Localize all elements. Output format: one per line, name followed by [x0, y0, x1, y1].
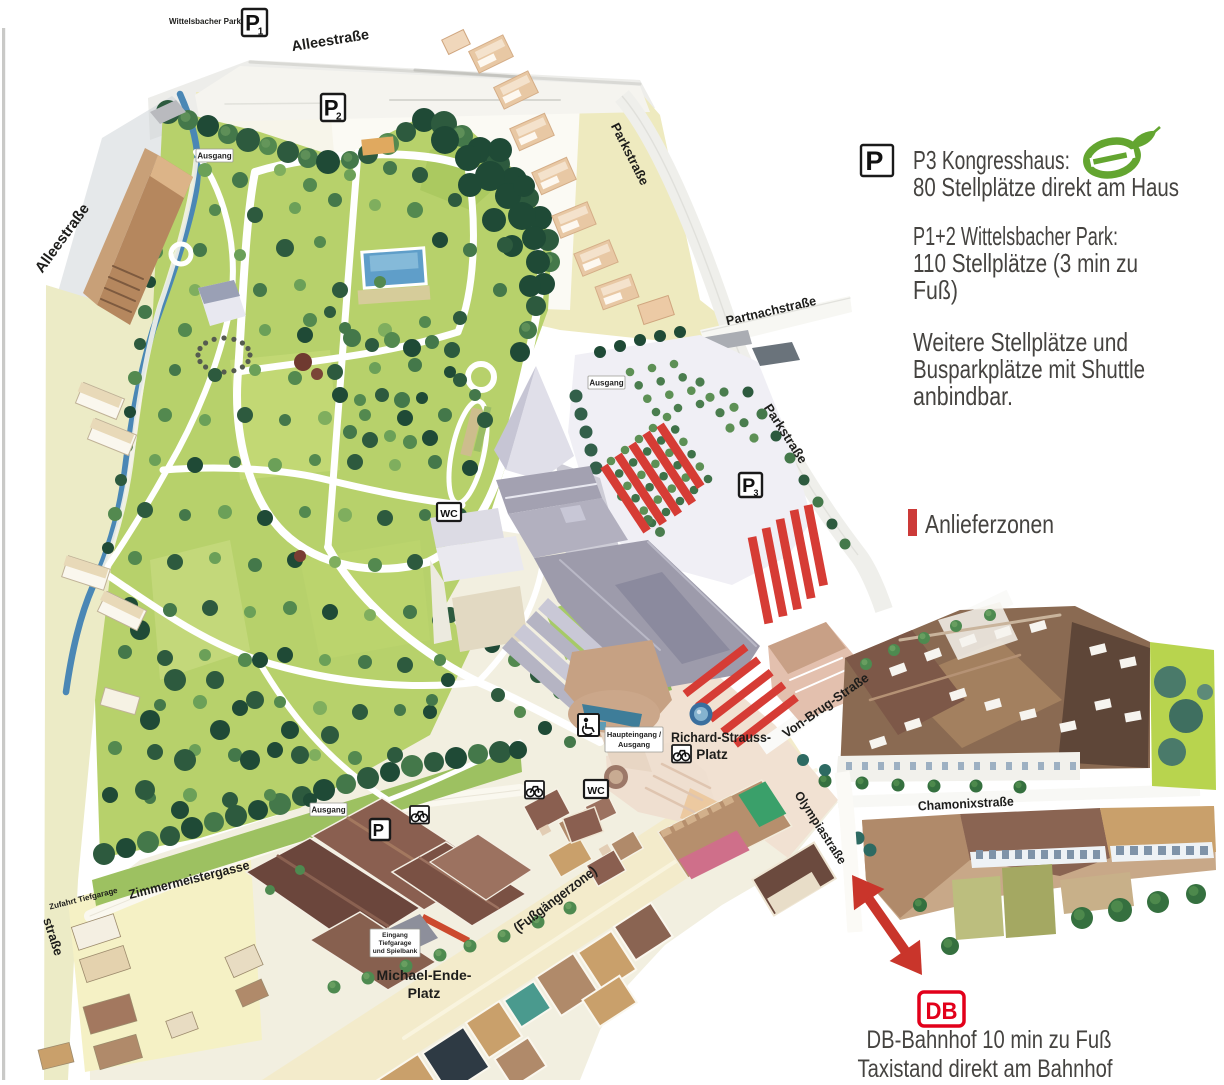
- svg-text:Ausgang: Ausgang: [589, 379, 623, 388]
- svg-text:P: P: [865, 146, 883, 176]
- svg-text:DB: DB: [926, 998, 958, 1025]
- svg-text:P1+2 Wittelsbacher Park:: P1+2 Wittelsbacher Park:: [913, 221, 1118, 251]
- svg-text:Ausgang: Ausgang: [311, 806, 345, 815]
- svg-text:WC: WC: [440, 508, 458, 520]
- svg-text:2: 2: [336, 112, 342, 123]
- svg-text:Tiefgarage: Tiefgarage: [379, 940, 412, 947]
- svg-text:P: P: [373, 820, 384, 840]
- svg-text:Eingang: Eingang: [382, 932, 408, 939]
- svg-text:Busparkplätze mit Shuttle: Busparkplätze mit Shuttle: [913, 354, 1145, 384]
- svg-text:3: 3: [754, 488, 759, 498]
- svg-text:1: 1: [258, 27, 264, 38]
- svg-text:Fuß): Fuß): [913, 275, 958, 305]
- svg-text:P3 Kongresshaus:: P3 Kongresshaus:: [913, 145, 1070, 175]
- svg-text:Richard-Strauss-: Richard-Strauss-: [671, 730, 771, 745]
- svg-text:WC: WC: [587, 785, 605, 797]
- svg-text:Platz: Platz: [408, 985, 441, 1001]
- svg-text:110 Stellplätze (3 min zu: 110 Stellplätze (3 min zu: [913, 248, 1138, 278]
- svg-text:Taxistand direkt am Bahnhof: Taxistand direkt am Bahnhof: [858, 1055, 1113, 1080]
- svg-text:Platz: Platz: [696, 747, 728, 762]
- svg-text:Ausgang: Ausgang: [618, 740, 651, 749]
- svg-text:Anlieferzonen: Anlieferzonen: [925, 509, 1054, 539]
- svg-text:und Spielbank: und Spielbank: [373, 948, 418, 955]
- svg-text:anbindbar.: anbindbar.: [913, 381, 1013, 411]
- svg-text:Wittelsbacher Park: Wittelsbacher Park: [169, 17, 242, 26]
- svg-text:Michael-Ende-: Michael-Ende-: [377, 967, 472, 983]
- svg-text:Weitere Stellplätze und: Weitere Stellplätze und: [913, 327, 1128, 357]
- svg-text:80 Stellplätze direkt am Haus: 80 Stellplätze direkt am Haus: [913, 172, 1179, 202]
- svg-text:Ausgang: Ausgang: [197, 152, 231, 161]
- svg-text:DB-Bahnhof 10 min zu Fuß: DB-Bahnhof 10 min zu Fuß: [867, 1026, 1112, 1054]
- svg-text:Haupteingang /: Haupteingang /: [607, 730, 662, 739]
